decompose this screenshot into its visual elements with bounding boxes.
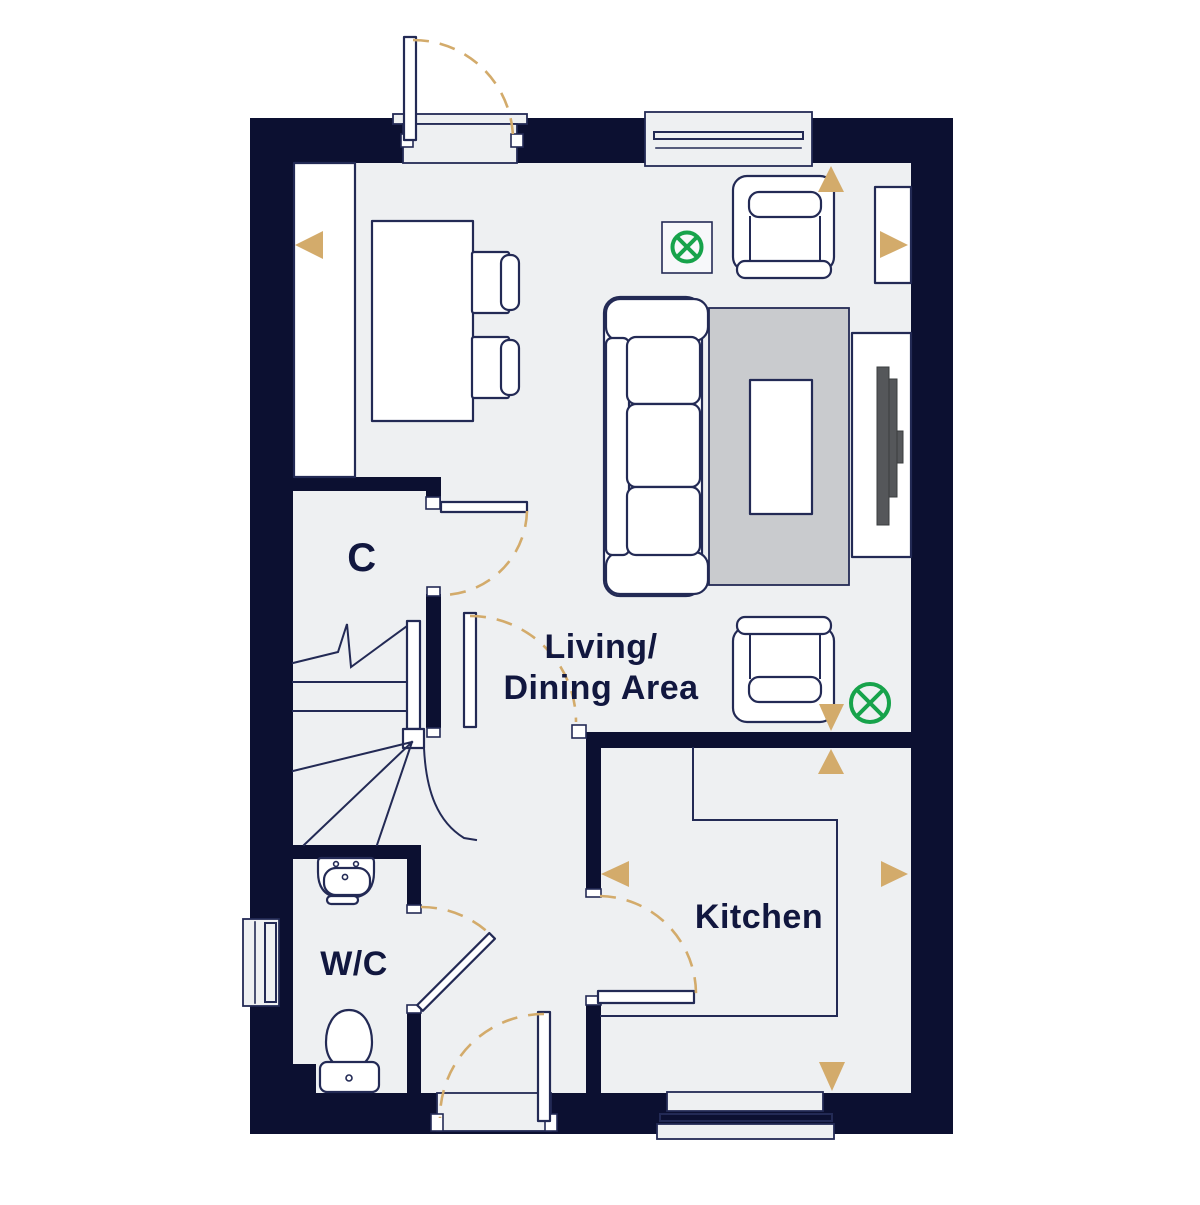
kitchen-label: Kitchen <box>695 898 823 936</box>
hall-wall-jamb-top <box>427 587 440 596</box>
stair-newel <box>403 729 424 748</box>
front-door <box>393 37 527 163</box>
front-door-leaf <box>404 37 416 140</box>
living-dining-label-line2: Dining Area <box>503 669 699 707</box>
front-door-jamb-right <box>511 134 523 147</box>
cupboard-wall <box>250 477 426 491</box>
rear-door-threshold <box>437 1093 551 1131</box>
tv-icon <box>877 367 889 525</box>
dining-chair <box>472 337 519 398</box>
tv-icon <box>897 431 903 463</box>
wc-corner-boxing <box>290 1064 316 1093</box>
floor-plan-page: C Living/ Dining Area Kitchen W/C <box>0 0 1200 1200</box>
kitchen-left-wall-lower <box>586 1004 601 1093</box>
kitchen-wall-jamb-left <box>572 725 586 738</box>
dining-table <box>372 221 473 421</box>
wc-right-wall-lower <box>407 1013 421 1093</box>
coffee-table <box>750 380 812 514</box>
dining-chair <box>472 252 519 313</box>
kitchen-door-leaf <box>598 991 694 1003</box>
living-window <box>645 112 812 166</box>
floor-plan: C Living/ Dining Area Kitchen W/C <box>0 0 1200 1200</box>
living-door-leaf <box>464 613 476 727</box>
living-dining-label-line1: Living/ <box>544 628 657 666</box>
cupboard-label: C <box>347 536 376 580</box>
kitchen-door-jamb-top <box>586 889 601 897</box>
rear-door-jamb-left <box>431 1114 443 1131</box>
ceiling-light-icon <box>662 222 712 273</box>
tv-icon <box>889 379 897 497</box>
cupboard-door-jamb <box>426 497 440 509</box>
rear-door-leaf <box>538 1012 550 1121</box>
sofa <box>604 297 708 596</box>
wc-right-wall-upper <box>407 845 421 905</box>
sideboard <box>294 163 355 477</box>
cupboard-door-leaf <box>441 502 527 512</box>
wc-door-jamb-top <box>407 905 421 913</box>
hall-wall <box>426 594 441 728</box>
armchair-bottom <box>733 617 834 722</box>
wc-label: W/C <box>320 945 388 983</box>
stair-stringer <box>407 621 420 729</box>
wc-window <box>243 919 279 1006</box>
front-door-recess <box>403 124 517 163</box>
kitchen-top-wall <box>586 732 911 748</box>
hall-wall-jamb-bottom <box>427 728 440 737</box>
tv-unit <box>852 333 911 557</box>
kitchen-left-wall-upper <box>586 732 601 890</box>
